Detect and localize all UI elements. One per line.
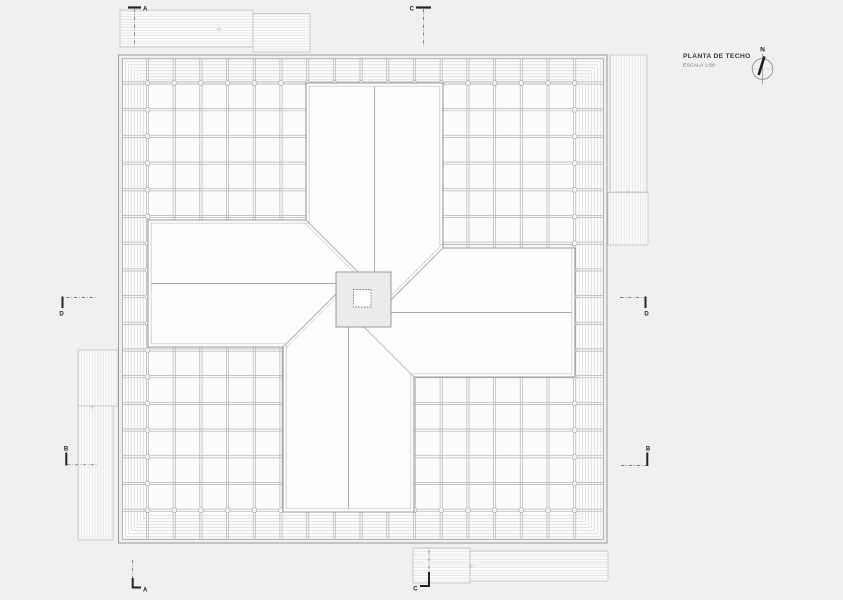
drawing-scale: ESCALA 1:50 xyxy=(683,63,715,69)
north-label: N xyxy=(760,47,765,54)
roof-plan-page: A C A C D D B xyxy=(0,0,843,600)
sheet-top-2 xyxy=(253,14,310,53)
section-marker-a-bottom: A xyxy=(133,560,148,594)
section-marker-c-top: C xyxy=(410,7,431,47)
section-label: A xyxy=(143,588,148,594)
sheet-left-1 xyxy=(78,350,118,406)
sheet-left-2 xyxy=(78,406,113,540)
north-arrow-icon: N xyxy=(751,47,775,85)
sheet-right-2 xyxy=(608,193,648,246)
section-label: A xyxy=(143,7,148,13)
center-skylight xyxy=(354,290,372,308)
drawing-title: PLANTA DE TECHO xyxy=(683,53,751,60)
section-label: C xyxy=(410,7,415,13)
sheet-bottom-1 xyxy=(413,548,470,583)
sheet-bottom-2 xyxy=(470,551,608,581)
sheet-right-1 xyxy=(610,55,647,192)
section-label: B xyxy=(64,447,69,453)
title-block: PLANTA DE TECHO ESCALA 1:50 xyxy=(683,53,751,69)
section-label: C xyxy=(413,587,418,593)
section-label: D xyxy=(59,312,64,318)
section-marker-d-left: D xyxy=(59,297,96,318)
section-label: B xyxy=(646,447,651,453)
section-marker-b-right: B xyxy=(621,447,651,467)
sheet-top-1 xyxy=(120,10,253,47)
section-marker-d-right: D xyxy=(620,297,649,318)
section-label: D xyxy=(644,312,649,318)
roof-plan-drawing: A C A C D D B xyxy=(0,0,843,600)
